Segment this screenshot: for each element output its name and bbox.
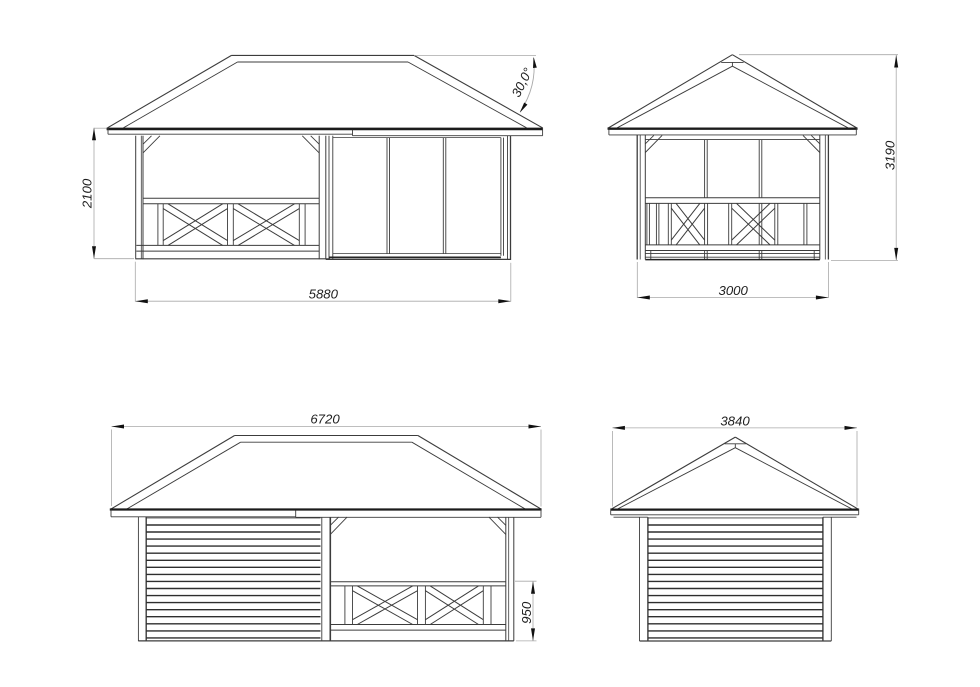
svg-text:2100: 2100 [80, 178, 95, 209]
svg-text:950: 950 [519, 601, 534, 624]
svg-text:6720: 6720 [310, 411, 340, 426]
svg-text:3840: 3840 [720, 413, 750, 428]
svg-text:3000: 3000 [719, 283, 749, 298]
svg-text:3190: 3190 [882, 140, 897, 170]
svg-text:5880: 5880 [309, 287, 339, 302]
